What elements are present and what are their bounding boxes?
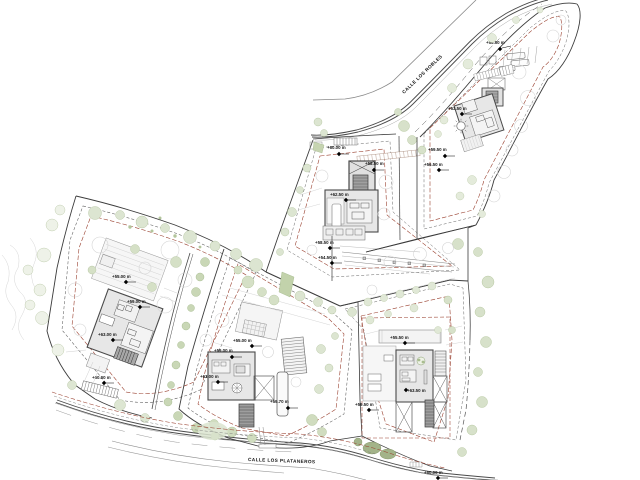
svg-text:+59.50 m: +59.50 m <box>355 402 374 407</box>
svg-text:+63.50 m: +63.50 m <box>407 388 426 393</box>
svg-text:+58.50 m: +58.50 m <box>315 240 334 245</box>
svg-text:+55.50 m: +55.50 m <box>390 335 409 340</box>
svg-text:+60.00 m: +60.00 m <box>327 145 346 150</box>
svg-text:+63.00 m: +63.00 m <box>98 332 117 337</box>
svg-text:+54.50 m: +54.50 m <box>318 255 337 260</box>
svg-text:+59.70 m: +59.70 m <box>270 399 289 404</box>
svg-text:+62.50 m: +62.50 m <box>330 192 349 197</box>
svg-text:+59.00 m: +59.00 m <box>127 299 146 304</box>
svg-text:+59.00 m: +59.00 m <box>214 348 233 353</box>
svg-text:+63.50 m: +63.50 m <box>448 106 467 111</box>
svg-text:+56.50 m: +56.50 m <box>424 162 443 167</box>
svg-text:+63.00 m: +63.00 m <box>200 374 219 379</box>
svg-text:+55.00 m: +55.00 m <box>233 338 252 343</box>
svg-text:+55.00 m: +55.00 m <box>112 274 131 279</box>
svg-text:+60.00 m: +60.00 m <box>424 470 443 475</box>
svg-text:+59.50 m: +59.50 m <box>428 147 447 152</box>
svg-text:+58.50 m: +58.50 m <box>365 161 384 166</box>
